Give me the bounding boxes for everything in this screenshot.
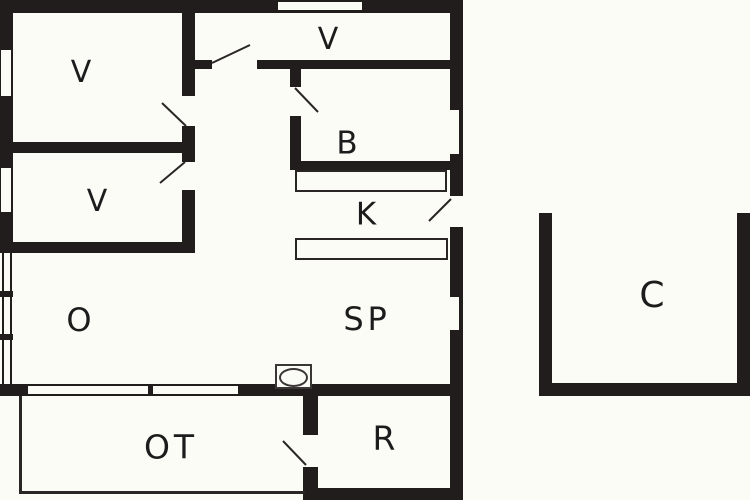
carport-wall-right bbox=[737, 213, 750, 396]
sink-fixture-icon bbox=[275, 364, 312, 389]
kitchen-counter-lower bbox=[295, 238, 448, 260]
window-top-wall bbox=[278, 2, 362, 10]
window-sp-right bbox=[450, 297, 459, 330]
room-label-v-bottom-left: V bbox=[87, 187, 108, 217]
room-label-v-top-middle: V bbox=[318, 25, 339, 55]
door-opening-kitchen-side bbox=[450, 196, 463, 227]
room-label-carport: C bbox=[639, 278, 664, 314]
window-v2-left bbox=[1, 168, 11, 212]
room-label-v-top-left: V bbox=[71, 58, 92, 88]
window-living-bottom-1 bbox=[28, 386, 148, 394]
room-label-living: O bbox=[66, 304, 91, 336]
exterior-wall-right bbox=[450, 0, 463, 500]
interior-wall-v2-o-divider bbox=[0, 242, 190, 253]
window-v1-left bbox=[1, 50, 11, 96]
door-opening-v1 bbox=[182, 96, 195, 126]
room-label-utility: R bbox=[373, 422, 396, 455]
window-living-bottom-2 bbox=[153, 386, 238, 394]
window-mullion bbox=[0, 334, 13, 340]
door-opening-utility bbox=[303, 435, 318, 467]
carport-wall-bottom bbox=[539, 383, 750, 396]
kitchen-counter-upper bbox=[295, 170, 447, 192]
door-opening-bath bbox=[290, 87, 301, 116]
carport-wall-left bbox=[539, 213, 552, 396]
interior-wall-v1-v2-divider bbox=[0, 142, 195, 153]
interior-wall-central-vertical bbox=[182, 13, 195, 253]
exterior-wall-utility-bottom bbox=[303, 488, 463, 500]
interior-wall-bath-left bbox=[290, 69, 301, 168]
room-label-bathroom: B bbox=[336, 129, 357, 160]
room-label-terrace: OT bbox=[144, 431, 198, 464]
window-frame-line bbox=[2, 253, 4, 384]
exterior-wall-left bbox=[0, 0, 13, 253]
window-mullion bbox=[0, 291, 13, 297]
window-frame-line bbox=[10, 253, 12, 384]
exterior-wall-top bbox=[0, 0, 463, 13]
door-swing-kitchen-side bbox=[429, 199, 451, 221]
door-opening-hall-entry bbox=[212, 60, 257, 69]
door-opening-v2 bbox=[182, 162, 195, 190]
window-bath-right bbox=[450, 110, 459, 154]
room-label-living-dining: SP bbox=[343, 303, 390, 335]
sink-bowl-icon bbox=[279, 368, 308, 387]
floor-plan: V V V B K O SP OT R C bbox=[0, 0, 750, 500]
room-label-kitchen: K bbox=[356, 200, 376, 231]
interior-wall-bath-bottom bbox=[290, 161, 463, 170]
